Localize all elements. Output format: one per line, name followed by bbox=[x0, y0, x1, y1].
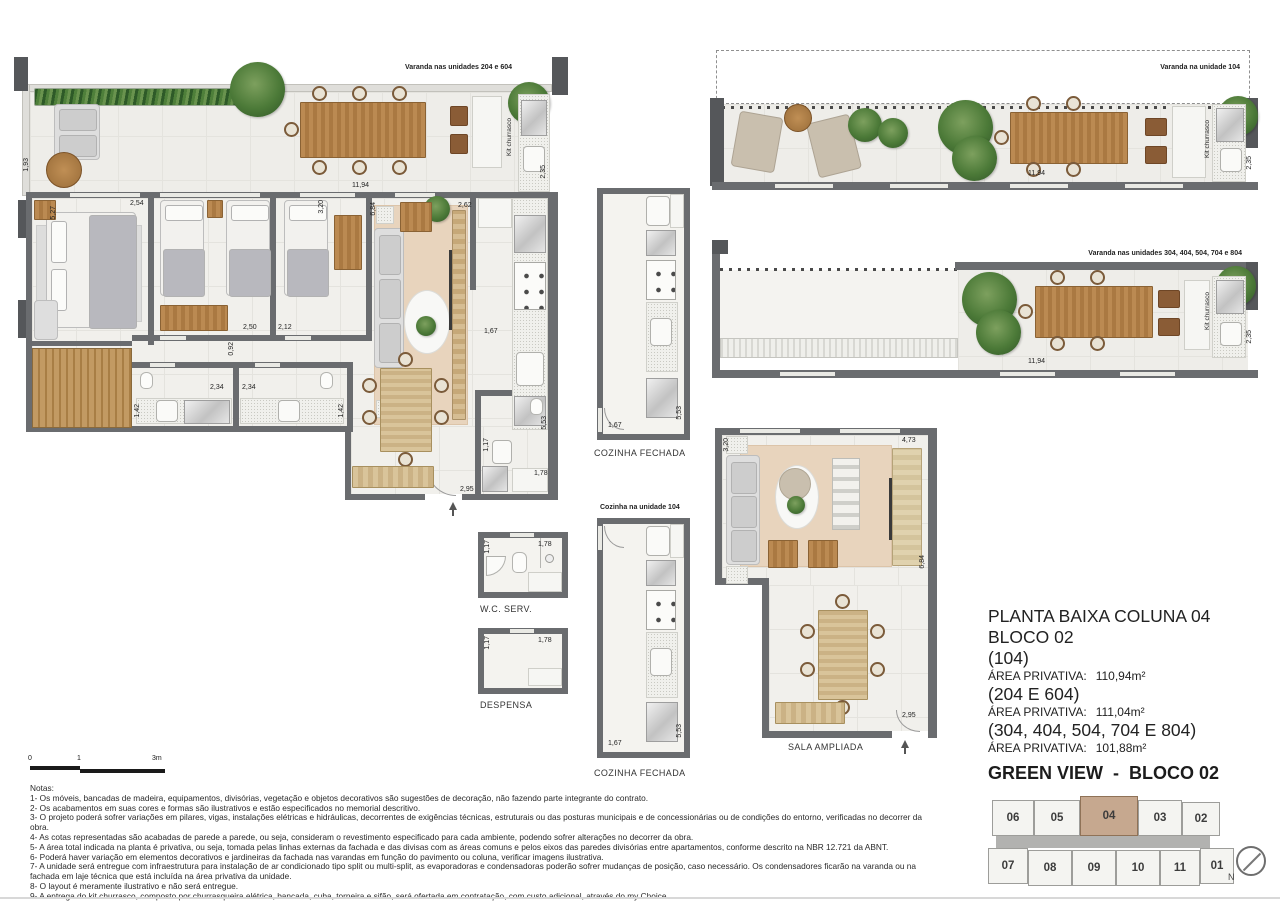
kit-churrasco-label: Kit churrasco bbox=[506, 118, 513, 156]
kit-churrasco-sink bbox=[1220, 148, 1242, 172]
compass-icon bbox=[1236, 846, 1266, 876]
dimension: 1,93 bbox=[23, 158, 30, 172]
north-arrow-stem bbox=[452, 510, 454, 516]
window bbox=[1000, 372, 1055, 376]
window bbox=[740, 429, 800, 433]
despensa-label: DESPENSA bbox=[480, 700, 532, 710]
dining-chair bbox=[1090, 336, 1105, 351]
plan-title-line1: PLANTA BAIXA COLUNA 04 bbox=[988, 606, 1210, 627]
dimension: 1,17 bbox=[484, 540, 491, 554]
cozinha-fechada-label: COZINHA FECHADA bbox=[594, 768, 686, 778]
window bbox=[890, 184, 948, 188]
stove-icon bbox=[646, 260, 676, 300]
window bbox=[300, 193, 355, 197]
dining-chair bbox=[1050, 336, 1065, 351]
floor-plan-sheet: Kit churrasco Varanda nas unidades 204 e… bbox=[0, 0, 1280, 905]
oven-icon bbox=[646, 702, 678, 742]
lamp-table bbox=[726, 566, 748, 584]
single-bed bbox=[284, 200, 328, 296]
dining-chair bbox=[994, 130, 1009, 145]
armchair bbox=[808, 540, 838, 568]
dimension: 2,35 bbox=[1246, 156, 1253, 170]
plant-icon bbox=[848, 108, 882, 142]
wall bbox=[478, 592, 568, 598]
dimension: 2,50 bbox=[243, 324, 257, 331]
dining-chair bbox=[870, 662, 885, 677]
stool bbox=[1145, 118, 1167, 136]
wall bbox=[762, 578, 769, 738]
dimension: 3,20 bbox=[723, 438, 730, 452]
door-gap bbox=[285, 336, 311, 340]
sofa-cushion bbox=[731, 462, 757, 494]
wall bbox=[562, 628, 568, 694]
wall bbox=[470, 197, 476, 290]
window bbox=[160, 193, 260, 197]
master-bed bbox=[46, 212, 136, 328]
area-value: 111,04m² bbox=[1096, 705, 1145, 719]
pillow bbox=[231, 205, 269, 221]
dimension: 11,94 bbox=[352, 182, 369, 189]
dimension: 1,42 bbox=[338, 404, 345, 418]
key-unit-06: 06 bbox=[992, 800, 1034, 836]
sofa-cushion bbox=[379, 279, 401, 319]
blanket bbox=[163, 249, 205, 297]
dining-chair bbox=[398, 352, 413, 367]
window bbox=[1010, 184, 1068, 188]
wall bbox=[762, 731, 892, 738]
tv-icon bbox=[889, 478, 892, 540]
door-gap bbox=[510, 629, 534, 633]
project-name: GREEN VIEW - BLOCO 02 bbox=[988, 763, 1219, 784]
blanket bbox=[287, 249, 329, 297]
compass-needle bbox=[1243, 853, 1261, 871]
wall bbox=[148, 197, 154, 345]
plant-icon bbox=[878, 118, 908, 148]
sala-sofa bbox=[726, 455, 760, 565]
kitchen2-sink bbox=[650, 648, 672, 676]
dining-chair bbox=[284, 122, 299, 137]
jardineira-hatch bbox=[720, 338, 958, 358]
kitchen2-sink-top bbox=[646, 526, 670, 556]
dimension: 2,54 bbox=[130, 200, 144, 207]
coffee-table-plant-icon bbox=[416, 316, 436, 336]
unit-304-804-area: ÁREA PRIVATIVA:101,88m² bbox=[988, 741, 1210, 756]
window bbox=[70, 193, 140, 197]
stool bbox=[1158, 318, 1180, 336]
wall bbox=[347, 362, 353, 432]
dining-chair bbox=[312, 86, 327, 101]
area-value: 101,88m² bbox=[1096, 741, 1147, 755]
living-sofa bbox=[374, 228, 404, 368]
area-label: ÁREA PRIVATIVA: bbox=[988, 705, 1087, 719]
laundry-icon bbox=[482, 466, 508, 492]
dimension: 4,73 bbox=[902, 437, 916, 444]
dimension: 0,92 bbox=[228, 342, 235, 356]
pillar-top-right bbox=[552, 57, 568, 95]
despensa-counter bbox=[528, 668, 562, 686]
wall bbox=[684, 188, 690, 440]
main-balcony-parapet-left bbox=[22, 84, 30, 196]
service-sink bbox=[492, 440, 512, 464]
door-gap bbox=[255, 363, 280, 367]
plant-icon bbox=[952, 136, 997, 181]
cozinha-fechada-label: COZINHA FECHADA bbox=[594, 448, 686, 458]
wall bbox=[475, 390, 481, 494]
nightstand bbox=[207, 200, 223, 218]
balcony-stool bbox=[450, 106, 468, 126]
dimension: 5,53 bbox=[541, 416, 548, 430]
dimension: 5,53 bbox=[676, 406, 683, 420]
tv-sideboard bbox=[892, 448, 922, 566]
wall bbox=[955, 262, 1258, 270]
wall bbox=[597, 752, 690, 758]
dimension: 1,17 bbox=[483, 438, 490, 452]
key-unit-07: 07 bbox=[988, 848, 1028, 884]
dimension: 2,62 bbox=[458, 202, 472, 209]
pillar-top-left bbox=[14, 57, 28, 91]
balcony-island-counter bbox=[472, 96, 502, 168]
key-unit-10: 10 bbox=[1116, 850, 1160, 886]
north-arrow-head bbox=[901, 740, 909, 748]
dresser bbox=[334, 215, 362, 270]
dining-chair bbox=[1050, 270, 1065, 285]
key-unit-11: 11 bbox=[1160, 850, 1200, 886]
note-item: 3- O projeto poderá sofrer variações em … bbox=[30, 813, 935, 833]
toilet-icon bbox=[512, 552, 527, 573]
dimension: 2,12 bbox=[278, 324, 292, 331]
pillow bbox=[165, 205, 203, 221]
wall bbox=[345, 432, 351, 500]
kitchen1-sink-top bbox=[646, 196, 670, 226]
fridge-icon bbox=[514, 215, 546, 253]
balcony-plant-icon bbox=[230, 62, 285, 117]
key-unit-03: 03 bbox=[1138, 800, 1182, 836]
varanda-104-label: Varanda na unidade 104 bbox=[1160, 64, 1240, 71]
unit-204-604-area: ÁREA PRIVATIVA:111,04m² bbox=[988, 705, 1210, 720]
balcony-round-table bbox=[46, 152, 82, 188]
armchair bbox=[768, 540, 798, 568]
lounge-cushion bbox=[59, 109, 97, 131]
key-unit-05: 05 bbox=[1034, 800, 1080, 836]
wardrobe-closet bbox=[32, 348, 132, 428]
bottom-divider bbox=[0, 897, 1280, 899]
wall bbox=[712, 254, 720, 378]
dimension: 1,42 bbox=[134, 404, 141, 418]
dining-chair bbox=[1026, 96, 1041, 111]
dimension: 3,20 bbox=[318, 200, 325, 214]
dimension: 6,84 bbox=[919, 555, 926, 569]
pillar bbox=[710, 98, 724, 186]
dining-chair bbox=[1018, 304, 1033, 319]
note-item: 7- A unidade será entregue com infraestr… bbox=[30, 862, 935, 882]
sofa-cushion bbox=[379, 235, 401, 275]
unit-104-area: ÁREA PRIVATIVA:110,94m² bbox=[988, 669, 1210, 684]
north-arrow-icon bbox=[900, 740, 910, 754]
door-gap bbox=[150, 363, 175, 367]
dimension: 2,95 bbox=[460, 486, 474, 493]
stool bbox=[1145, 146, 1167, 164]
dining-chair bbox=[1066, 162, 1081, 177]
wall bbox=[597, 188, 603, 440]
dining-chair bbox=[352, 86, 367, 101]
pillar bbox=[712, 240, 728, 254]
dimension: 6,84 bbox=[370, 202, 377, 216]
armchair bbox=[400, 202, 432, 232]
kitchen1-sink bbox=[650, 318, 672, 346]
window bbox=[840, 429, 900, 433]
master-armchair bbox=[34, 300, 58, 340]
scale-tick-0: 0 bbox=[28, 755, 32, 762]
grill-icon bbox=[521, 100, 547, 136]
scale-tick-1: 1 bbox=[77, 755, 81, 762]
dimension: 2,34 bbox=[210, 384, 224, 391]
window bbox=[780, 372, 835, 376]
dining-chair bbox=[835, 594, 850, 609]
dining-chair bbox=[312, 160, 327, 175]
north-arrow-icon bbox=[448, 502, 458, 516]
wall bbox=[928, 428, 937, 738]
door-gap bbox=[598, 526, 602, 550]
toilet-icon bbox=[140, 372, 153, 389]
area-label: ÁREA PRIVATIVA: bbox=[988, 669, 1087, 683]
balcony-dining-table bbox=[1010, 112, 1128, 164]
dining-chair bbox=[434, 378, 449, 393]
shaft bbox=[670, 524, 684, 558]
notes-block: Notas: 1- Os móveis, bancadas de madeira… bbox=[30, 784, 935, 902]
key-unit-02: 02 bbox=[1182, 802, 1220, 836]
dining-chair bbox=[1090, 270, 1105, 285]
dining-chair bbox=[352, 160, 367, 175]
kit-churrasco-label: Kit churrasco bbox=[1204, 292, 1211, 330]
dining-chair bbox=[800, 624, 815, 639]
title-block: PLANTA BAIXA COLUNA 04 BLOCO 02 (104) ÁR… bbox=[988, 606, 1210, 756]
kit-churrasco-label: Kit churrasco bbox=[1204, 120, 1211, 158]
wall bbox=[597, 518, 603, 758]
toilet-icon bbox=[320, 372, 333, 389]
dimension: 5,27 bbox=[50, 206, 57, 220]
balcony-stool bbox=[450, 134, 468, 154]
wall bbox=[684, 518, 690, 758]
key-unit-09: 09 bbox=[1072, 850, 1116, 886]
north-arrow-stem bbox=[904, 748, 906, 754]
wall bbox=[348, 494, 425, 500]
compass-n-label: N bbox=[1228, 872, 1235, 882]
dimension: 2,35 bbox=[1246, 330, 1253, 344]
pillar bbox=[18, 300, 26, 338]
pillow bbox=[51, 221, 67, 263]
lamp-table bbox=[376, 206, 394, 224]
wall bbox=[478, 688, 568, 694]
scale-bar-segment bbox=[80, 769, 165, 773]
unit-104-name: (104) bbox=[988, 648, 1210, 669]
door-gap bbox=[510, 533, 534, 537]
ladder-shelf bbox=[832, 458, 860, 530]
sala-dining-table bbox=[818, 610, 868, 700]
dimension: 1,78 bbox=[538, 637, 552, 644]
toilet-icon bbox=[530, 398, 543, 415]
unit-204-604-name: (204 E 604) bbox=[988, 684, 1210, 705]
sideboard bbox=[775, 702, 845, 724]
blanket bbox=[89, 215, 137, 329]
sofa-cushion bbox=[731, 496, 757, 528]
fridge-icon bbox=[646, 230, 676, 256]
shower-head-icon bbox=[545, 554, 554, 563]
kit-churrasco-sink bbox=[1220, 322, 1242, 346]
dining-table bbox=[380, 368, 432, 452]
scale-bar-segment bbox=[30, 766, 80, 770]
single-bed bbox=[226, 200, 270, 296]
dining-chair bbox=[434, 410, 449, 425]
wall bbox=[548, 192, 558, 500]
bathtub-icon bbox=[184, 400, 230, 424]
dining-chair bbox=[362, 378, 377, 393]
stove-icon bbox=[646, 590, 676, 630]
scale-tick-3m: 3m bbox=[152, 755, 162, 762]
plant-icon bbox=[976, 310, 1021, 355]
dining-chair bbox=[398, 452, 413, 467]
bath1-sink bbox=[156, 400, 178, 422]
unit-304-804-name: (304, 404, 504, 704 E 804) bbox=[988, 720, 1210, 741]
shaft bbox=[670, 194, 684, 228]
window bbox=[775, 184, 833, 188]
dimension: 1,67 bbox=[608, 422, 622, 429]
dimension: 1,67 bbox=[608, 740, 622, 747]
wall bbox=[597, 434, 690, 440]
window bbox=[1125, 184, 1183, 188]
sideboard bbox=[352, 466, 434, 488]
dashed-extension-outline bbox=[716, 50, 1250, 104]
plan-title-line2: BLOCO 02 bbox=[988, 627, 1210, 648]
dimension: 11,94 bbox=[1028, 358, 1045, 365]
tv-icon bbox=[449, 250, 452, 330]
edge-dots bbox=[720, 268, 958, 271]
balcony-dining-table bbox=[300, 102, 426, 158]
dimension: 5,53 bbox=[676, 724, 683, 738]
dimension: 2,95 bbox=[902, 712, 916, 719]
dimension: 11,94 bbox=[1028, 170, 1045, 177]
wall bbox=[715, 428, 722, 585]
blanket bbox=[229, 249, 271, 297]
tv-panel bbox=[452, 210, 466, 420]
dining-chair bbox=[392, 86, 407, 101]
key-plan-corridor bbox=[996, 836, 1210, 848]
fridge-icon bbox=[646, 560, 676, 586]
grill-icon bbox=[1216, 108, 1244, 142]
dining-chair bbox=[392, 160, 407, 175]
dimension: 1,78 bbox=[538, 541, 552, 548]
wc-serv-label: W.C. SERV. bbox=[480, 604, 532, 614]
wall bbox=[366, 197, 372, 335]
area-value: 110,94m² bbox=[1096, 669, 1146, 683]
stool bbox=[1158, 290, 1180, 308]
wc-counter bbox=[528, 572, 562, 592]
kitchen-sink bbox=[516, 352, 544, 386]
north-arrow-head bbox=[449, 502, 457, 510]
oven-icon bbox=[646, 378, 678, 418]
key-unit-04-highlighted: 04 bbox=[1080, 796, 1138, 836]
window bbox=[1120, 372, 1175, 376]
stove-icon bbox=[514, 262, 546, 310]
key-unit-08: 08 bbox=[1028, 850, 1072, 886]
door-gap bbox=[160, 336, 186, 340]
bath2-sink bbox=[278, 400, 300, 422]
wall bbox=[26, 341, 132, 346]
varanda-304-label: Varanda nas unidades 304, 404, 504, 704 … bbox=[1088, 250, 1242, 257]
pillar bbox=[18, 200, 26, 238]
dining-chair bbox=[870, 624, 885, 639]
window bbox=[395, 193, 435, 197]
dimension: 2,34 bbox=[242, 384, 256, 391]
dining-chair bbox=[1066, 96, 1081, 111]
wall bbox=[562, 532, 568, 598]
dimension: 1,78 bbox=[534, 470, 548, 477]
balcony-dining-table bbox=[1035, 286, 1153, 338]
dimension: 2,35 bbox=[540, 165, 547, 179]
dimension: 1,67 bbox=[484, 328, 498, 335]
grill-icon bbox=[1216, 280, 1244, 314]
sala-ampliada-label: SALA AMPLIADA bbox=[788, 742, 863, 752]
kitchen-cabinet bbox=[478, 198, 512, 228]
varanda-204-604-label: Varanda nas unidades 204 e 604 bbox=[405, 64, 512, 71]
laje-floor bbox=[720, 270, 958, 338]
dimension: 1,17 bbox=[484, 636, 491, 650]
area-label: ÁREA PRIVATIVA: bbox=[988, 741, 1087, 755]
single-bed bbox=[160, 200, 204, 296]
dining-chair bbox=[800, 662, 815, 677]
door-gap bbox=[598, 408, 602, 432]
cozinha-104-label: Cozinha na unidade 104 bbox=[600, 504, 680, 511]
sofa-cushion bbox=[731, 530, 757, 562]
console-counter bbox=[1172, 106, 1206, 178]
plant-icon bbox=[787, 496, 805, 514]
wall bbox=[462, 494, 558, 500]
wall bbox=[233, 362, 239, 430]
dresser bbox=[160, 305, 228, 331]
dining-chair bbox=[362, 410, 377, 425]
round-table bbox=[784, 104, 812, 132]
